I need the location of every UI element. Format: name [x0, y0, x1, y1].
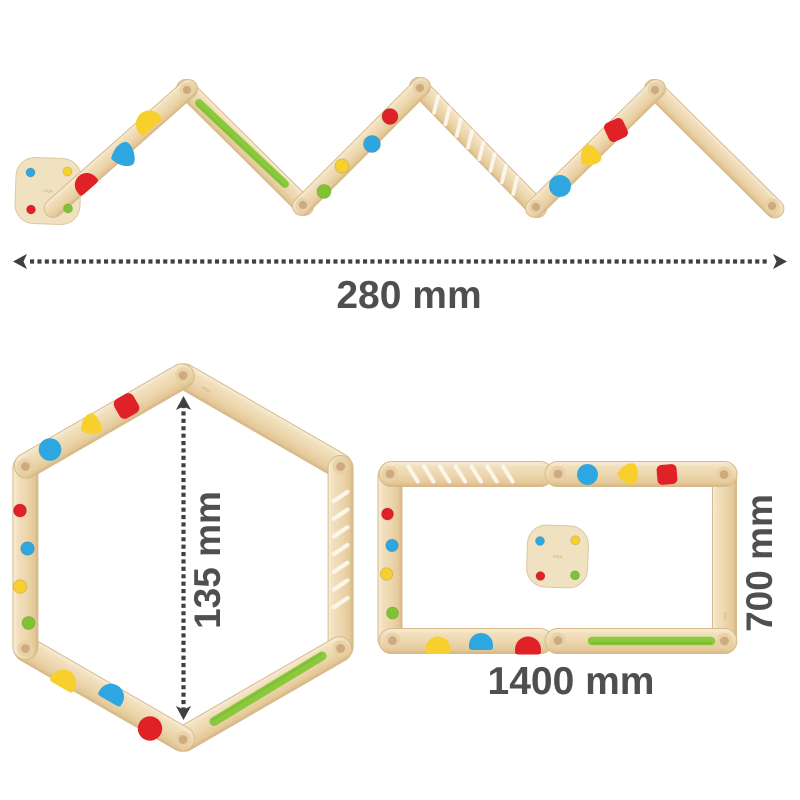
- svg-text:700 mm: 700 mm: [739, 494, 780, 632]
- svg-text:VIGA: VIGA: [723, 611, 728, 621]
- svg-text:1400 mm: 1400 mm: [488, 660, 655, 703]
- svg-text:VIGA: VIGA: [553, 554, 563, 559]
- svg-text:135 mm: 135 mm: [187, 491, 228, 629]
- svg-text:VIGA: VIGA: [43, 188, 53, 193]
- svg-text:280 mm: 280 mm: [336, 274, 481, 317]
